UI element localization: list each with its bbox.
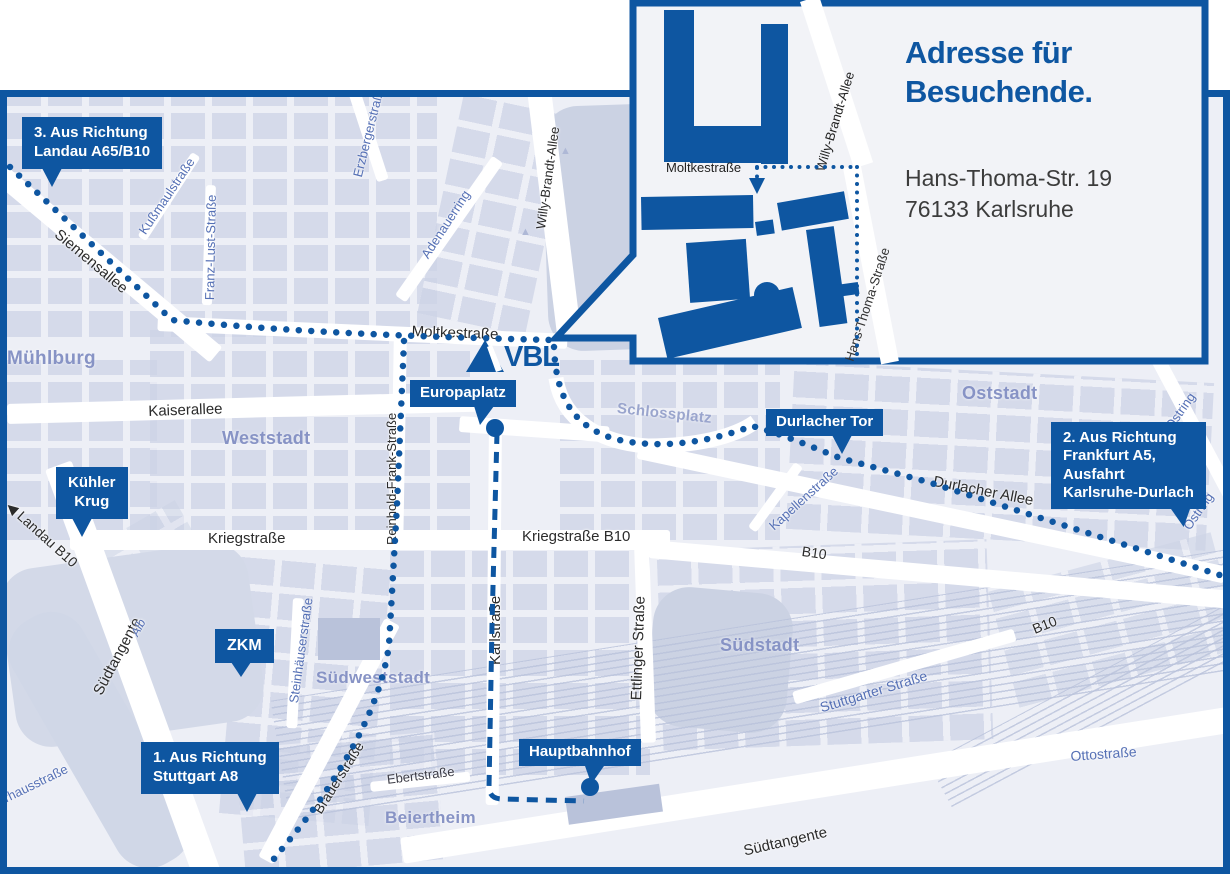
callout-line: Durlacher Tor [776, 413, 873, 432]
tree-icon: ▲ [620, 295, 631, 307]
callout-line: Kühler [68, 474, 116, 493]
callout-tail [832, 435, 852, 454]
callout-tail [231, 662, 251, 677]
street-label-ettlinger-strasse: Ettlinger Straße [628, 596, 649, 701]
callout-line: Ausfahrt [1063, 466, 1194, 484]
inset-address: Hans-Thoma-Str. 19 76133 Karlsruhe [905, 163, 1112, 225]
inset-building [641, 195, 754, 230]
callout-tail [72, 518, 92, 537]
karlsruhe-directions-map: ▲ ▲ ▲ ▲ ▲ ▲ Siemensallee Moltkestraße Ka… [0, 0, 1230, 874]
tree-icon: ▲ [560, 145, 571, 157]
callout-tail [42, 168, 62, 187]
callout-tail [470, 406, 494, 425]
district-label-suedweststadt: Südweststadt [316, 668, 430, 688]
district-label-oststadt: Oststadt [962, 383, 1037, 404]
inset-title-line: Adresse für [905, 33, 1092, 72]
inset-building [761, 24, 788, 164]
street-label-kaiserallee: Kaiserallee [148, 400, 223, 420]
vbl-headquarters-marker: VBL [466, 340, 559, 372]
callout-line: Stuttgart A8 [153, 768, 267, 787]
callout-line: ZKM [227, 636, 262, 656]
callout-line: 3. Aus Richtung [34, 124, 150, 143]
callout-europaplatz: Europaplatz [410, 380, 516, 407]
street-label-karlstrasse: Karlstraße [487, 596, 504, 665]
district-label-beiertheim: Beiertheim [385, 808, 476, 828]
zkm-building [318, 618, 380, 660]
callout-line: 2. Aus Richtung [1063, 429, 1194, 447]
inset-street-label-moltkestrasse: Moltkestraße [666, 160, 741, 175]
street-label-kriegstrasse-b10: Kriegstraße B10 [522, 528, 630, 545]
callout-route2-frankfurt: 2. Aus Richtung Frankfurt A5, Ausfahrt K… [1051, 422, 1206, 509]
inset-address-line: Hans-Thoma-Str. 19 [905, 163, 1112, 194]
callout-tail [1170, 508, 1193, 527]
tree-icon: ▲ [648, 178, 659, 190]
inset-address-line: 76133 Karlsruhe [905, 194, 1112, 225]
callout-line: 1. Aus Richtung [153, 749, 267, 768]
street-label-franz-lust-strasse: Franz-Lust-Straße [202, 195, 219, 301]
street-label-kriegstrasse: Kriegstraße [208, 530, 286, 547]
callout-hauptbahnhof: Hauptbahnhof [519, 739, 641, 766]
inset-building [690, 126, 765, 163]
callout-line: Landau A65/B10 [34, 143, 150, 162]
vbl-triangle-icon [466, 340, 504, 372]
callout-line: Karlsruhe-Durlach [1063, 484, 1194, 502]
callout-line: Europaplatz [420, 384, 506, 403]
callout-tail [581, 765, 604, 784]
district-label-suedstadt: Südstadt [720, 635, 799, 656]
callout-durlacher-tor: Durlacher Tor [766, 409, 883, 436]
tree-icon: ▲ [520, 226, 531, 238]
callout-tail [237, 793, 257, 812]
callout-kuehler-krug: Kühler Krug [56, 467, 128, 519]
inset-title: Adresse für Besuchende. [905, 33, 1092, 111]
callout-line: Frankfurt A5, [1063, 447, 1194, 465]
inset-building [755, 219, 775, 235]
inset-building [686, 239, 750, 303]
district-label-muehlburg: Mühlburg [7, 348, 96, 370]
callout-route3-landau: 3. Aus Richtung Landau A65/B10 [22, 117, 162, 169]
callout-zkm: ZKM [215, 629, 274, 663]
callout-line: Hauptbahnhof [529, 743, 631, 762]
callout-line: Krug [68, 493, 116, 512]
street-label-reinhold-frank-strasse: Reinhold-Frank-Straße [384, 413, 399, 545]
vbl-logo-text: VBL [504, 342, 559, 372]
district-label-weststadt: Weststadt [222, 428, 310, 449]
inset-title-line: Besuchende. [905, 72, 1092, 111]
street-label-b10-east: B10 [801, 543, 828, 562]
callout-route1-stuttgart: 1. Aus Richtung Stuttgart A8 [141, 742, 279, 794]
